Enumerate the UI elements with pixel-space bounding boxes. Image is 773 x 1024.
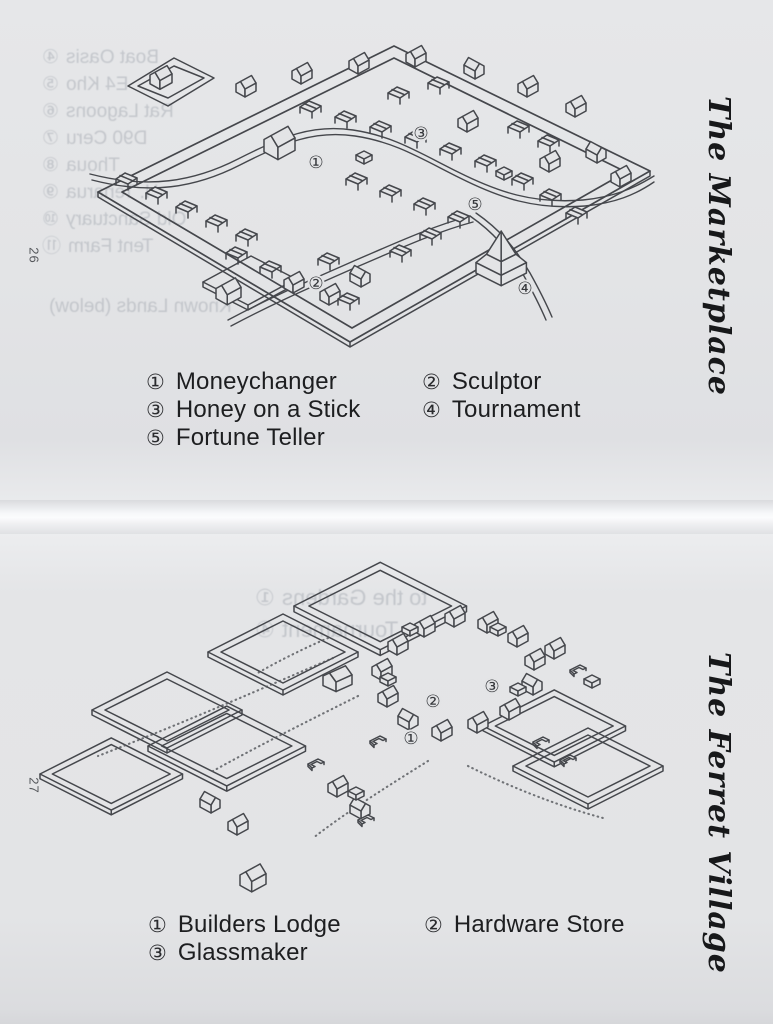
tournament-pavilion [476, 231, 526, 286]
legend-label: Builders Lodge [178, 912, 341, 938]
marketplace-map-illustration: ① ② ③ ④ ⑤ [88, 24, 672, 366]
map-marker-2: ② [425, 692, 442, 712]
svg-text:②: ② [425, 692, 440, 712]
legend-item: ③Glassmaker [148, 940, 424, 966]
legend-item: ④Tournament [422, 397, 581, 423]
map-marker-5: ⑤ [467, 195, 484, 215]
legend-label: Hardware Store [454, 912, 625, 938]
legend-label: Moneychanger [176, 369, 337, 395]
legend-number: ② [424, 912, 443, 938]
legend-item: ⑤Fortune Teller [146, 425, 422, 451]
legend-number: ① [146, 369, 165, 395]
legend-item: ③Honey on a Stick [146, 397, 422, 423]
svg-text:①: ① [403, 729, 418, 749]
page-number-27: 27 [27, 777, 42, 793]
page-26: ④Boat Oasis ⑤E4 Kho ⑥Rat Lagoons ⑦D90 Ce… [0, 0, 773, 500]
legend-number: ② [422, 369, 441, 395]
legend-label: Sculptor [452, 369, 542, 395]
ferret-village-map-illustration: ① ② ③ [28, 546, 692, 904]
field-plots [40, 562, 663, 815]
page-number-26: 26 [27, 247, 42, 263]
svg-text:②: ② [308, 274, 323, 294]
legend-label: Tournament [452, 397, 581, 423]
legend-label: Fortune Teller [176, 425, 325, 451]
svg-text:③: ③ [413, 124, 428, 144]
page-27: ①to the Gardens ④Tournament [0, 534, 773, 1024]
map-marker-1: ① [308, 153, 325, 173]
legend-number: ③ [148, 940, 167, 966]
legend-number: ③ [146, 397, 165, 423]
map-marker-3: ③ [413, 124, 430, 144]
ferret-village-legend: ①Builders Lodge ②Hardware Store ③Glassma… [148, 912, 625, 966]
svg-text:①: ① [308, 153, 323, 173]
marketplace-legend: ①Moneychanger ②Sculptor ③Honey on a Stic… [146, 369, 581, 451]
map-marker-1: ① [403, 729, 420, 749]
map-marker-2: ② [308, 274, 325, 294]
scanned-manual-page: { "scan": { "pages": [ { "page_number": … [0, 0, 773, 1024]
legend-item: ①Moneychanger [146, 369, 422, 395]
buildings [116, 46, 631, 311]
side-title-marketplace: The Marketplace [701, 96, 736, 396]
legend-number: ④ [422, 397, 441, 423]
svg-text:⑤: ⑤ [467, 195, 482, 215]
legend-number: ⑤ [146, 425, 165, 451]
map-marker-4: ④ [517, 279, 534, 299]
svg-text:③: ③ [484, 677, 499, 697]
side-title-ferret-village: The Ferret Village [701, 652, 736, 974]
legend-item: ②Sculptor [422, 369, 581, 395]
page-fold [0, 500, 773, 534]
legend-label: Glassmaker [178, 940, 308, 966]
legend-item: ①Builders Lodge [148, 912, 424, 938]
map-marker-3: ③ [484, 677, 501, 697]
legend-number: ① [148, 912, 167, 938]
legend-item: ②Hardware Store [424, 912, 625, 938]
plaza-rim [98, 46, 650, 347]
legend-label: Honey on a Stick [176, 397, 361, 423]
svg-text:④: ④ [517, 279, 532, 299]
